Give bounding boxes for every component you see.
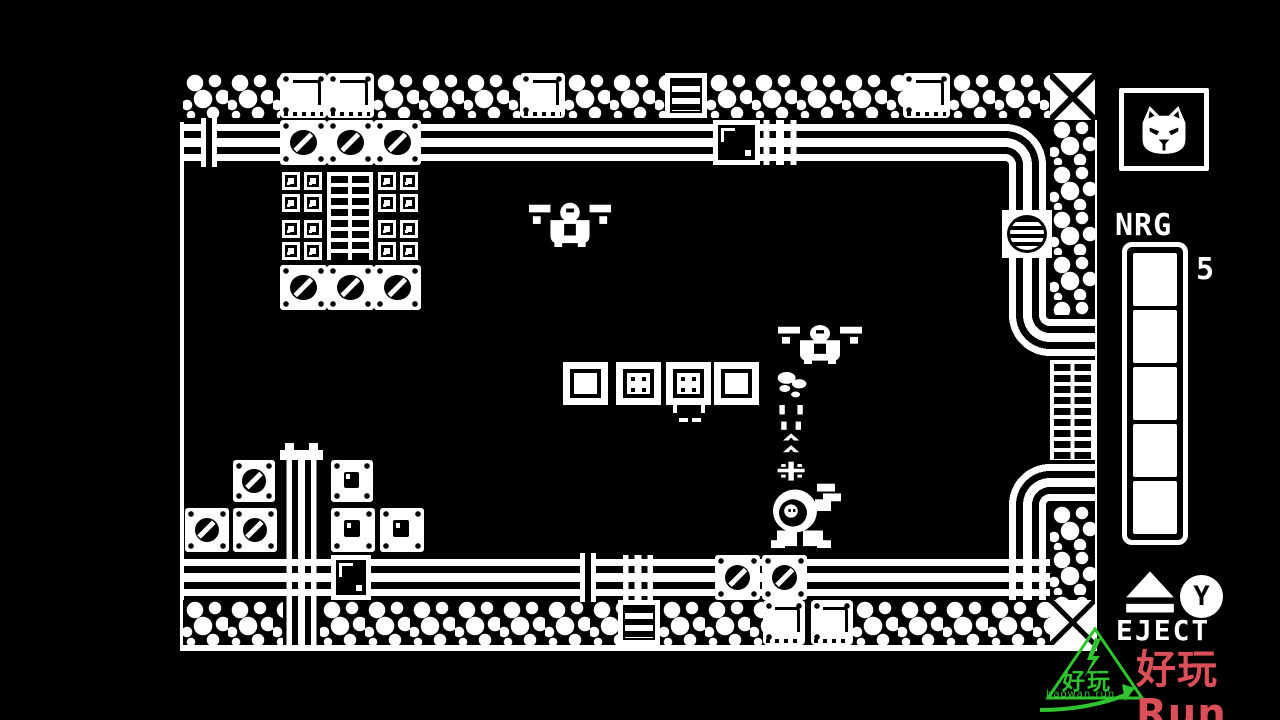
tile-plate: [280, 73, 327, 118]
nrg-segment: [1133, 481, 1177, 534]
tile-vbar: [201, 118, 217, 167]
tile-line: [180, 645, 1097, 651]
tile-plate: [903, 73, 950, 118]
tile-elbow-ne: [1005, 315, 1050, 360]
tile-crate: [280, 265, 327, 310]
tile-hpipe: [1050, 460, 1095, 505]
tile-rock: [660, 600, 763, 645]
tile-junctionv: [620, 555, 656, 600]
tile-junctionv: [283, 555, 320, 600]
tile-crate: [374, 120, 421, 165]
tile-xtile: [1050, 73, 1095, 120]
tile-crate: [327, 265, 374, 310]
tile-elbow-ws: [1005, 120, 1050, 165]
nrg-bar: [1122, 242, 1188, 545]
tile-vbar: [580, 553, 596, 602]
tile-junctionv: [760, 120, 800, 165]
tile-smallblock: [282, 194, 300, 212]
nrg-segment: [1133, 253, 1177, 306]
tile-darkcrate: [331, 555, 371, 600]
tile-rock: [1050, 505, 1095, 600]
tile-crate2: [331, 508, 375, 552]
tile-crate: [327, 120, 374, 165]
tile-smallblock: [304, 220, 322, 238]
tile-rock: [1050, 120, 1095, 315]
tile-crate: [280, 120, 327, 165]
tile-cap: [280, 450, 323, 460]
tile-crate: [715, 555, 760, 600]
tile-smallblock: [304, 172, 322, 190]
watermark-green-url: haowan.run: [1046, 689, 1115, 700]
sprite-drip: [667, 402, 712, 428]
sprite-fly: [527, 197, 613, 247]
sprite-mech: [765, 472, 845, 550]
watermark-red: 好玩Run www.haowan.run: [1136, 648, 1280, 720]
tile-crate: [233, 460, 275, 502]
nrg-segment: [1133, 310, 1177, 363]
tile-smallblock: [378, 242, 396, 260]
tile-plate: [327, 73, 374, 118]
tile-smallblock: [378, 172, 396, 190]
tile-rock: [853, 600, 1050, 645]
sprite-fly: [776, 320, 864, 364]
tile-rock: [320, 600, 618, 645]
tile-smallblock: [400, 194, 418, 212]
tile-smallblock: [378, 220, 396, 238]
tile-smallblock: [400, 242, 418, 260]
tile-smallblock: [378, 194, 396, 212]
tile-vpipe: [283, 458, 320, 645]
tile-plate: [520, 73, 565, 118]
tile-darkcrate: [713, 120, 760, 165]
tile-rock: [707, 73, 903, 118]
tile-smallblock: [304, 194, 322, 212]
cat-face-icon: [1133, 99, 1195, 161]
tile-smallblock: [304, 242, 322, 260]
y-button-icon: Y: [1180, 575, 1223, 618]
nrg-segment: [1133, 424, 1177, 477]
tile-blockdots: [616, 362, 661, 405]
tile-rock: [950, 73, 1050, 118]
pilot-portrait-frame: [1119, 88, 1209, 171]
tile-hpipe: [1050, 315, 1095, 360]
tile-crate2: [380, 508, 424, 552]
tile-ladder: [665, 73, 707, 118]
tile-crate: [233, 508, 277, 552]
nrg-segment: [1133, 367, 1177, 420]
tile-smallblock: [282, 242, 300, 260]
tile-smallblock: [282, 172, 300, 190]
playfield[interactable]: [180, 60, 1097, 651]
tile-blockplain: [563, 362, 608, 405]
tile-ladder: [618, 600, 660, 645]
tile-plate: [763, 600, 805, 645]
tile-junctionv: [1005, 555, 1050, 600]
tile-grate: [1050, 360, 1095, 460]
tile-vpipe: [1005, 505, 1050, 555]
tile-crate2: [331, 460, 373, 502]
tile-crate: [762, 555, 807, 600]
game-screen: NRG 5 Y EJECT 好玩 haowan.run 好玩Run www.ha…: [0, 0, 1280, 720]
tile-plate: [811, 600, 853, 645]
tile-smallblock: [282, 220, 300, 238]
tile-rock: [183, 73, 280, 118]
eject-icon: [1124, 570, 1176, 616]
tile-blockdots: [666, 362, 711, 405]
tile-crate: [185, 508, 229, 552]
tile-rock: [565, 73, 665, 118]
tile-elbow-ed: [1005, 460, 1050, 505]
tile-grate: [327, 172, 373, 260]
tile-blockplain: [714, 362, 759, 405]
tile-rock: [374, 73, 520, 118]
y-button-label: Y: [1193, 581, 1209, 612]
nrg-value: 5: [1196, 252, 1214, 287]
watermark-red-text: 好玩Run: [1136, 648, 1280, 720]
tile-crate: [374, 265, 421, 310]
tile-rock: [183, 600, 283, 645]
tile-smallblock: [400, 172, 418, 190]
tile-smallblock: [400, 220, 418, 238]
nrg-label: NRG: [1115, 208, 1172, 243]
tile-vent: [1002, 210, 1052, 258]
